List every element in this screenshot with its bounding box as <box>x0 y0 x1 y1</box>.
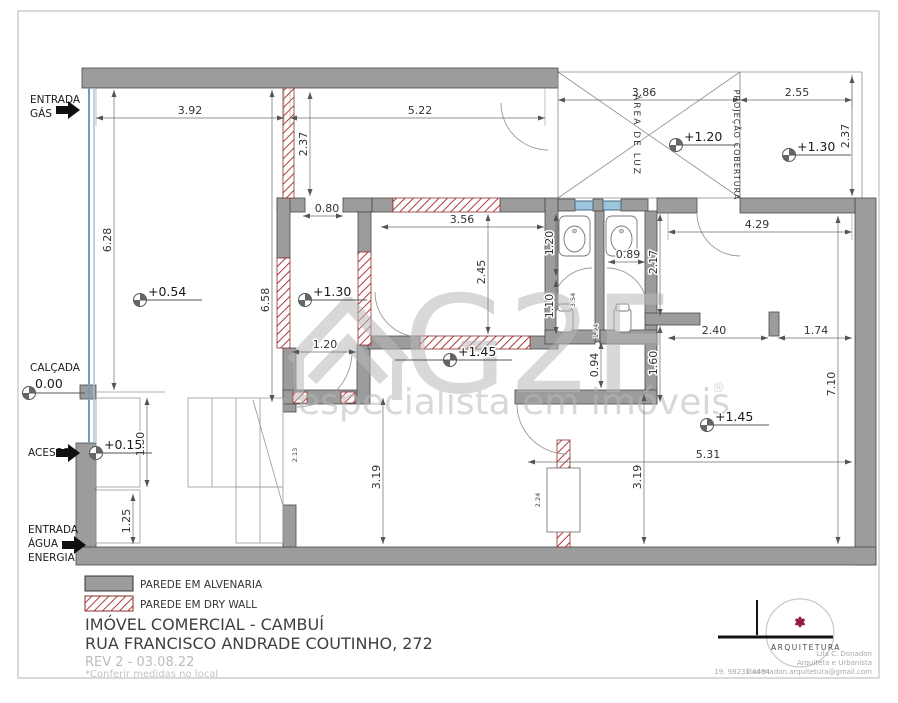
dim-label: 0.80 <box>315 202 340 215</box>
window-icon <box>575 201 593 210</box>
legend-label-alvenaria: PAREDE EM ALVENARIA <box>140 579 263 591</box>
dim-label: 6.58 <box>259 288 272 313</box>
dim-label: 1.60 <box>647 351 660 376</box>
calcada-label: CALÇADA <box>30 362 81 374</box>
dim-label: 2.17 <box>647 250 660 275</box>
svg-text:+1.45: +1.45 <box>715 409 753 424</box>
architect-email: liladonadon.arquitetura@gmail.com <box>746 668 872 676</box>
project-address: RUA FRANCISCO ANDRADE COUTINHO, 272 <box>85 634 433 653</box>
dim-label: 2.24 <box>534 493 542 507</box>
dim-label: 2.37 <box>297 132 310 157</box>
floor-plan-sheet: G2F especialista em imóveis ® 3.92 5.22 … <box>0 0 898 699</box>
dim-label: 2.45 <box>475 260 488 285</box>
legend-label-drywall: PAREDE EM DRY WALL <box>140 599 257 611</box>
architect-name: Lila C. Donadon <box>817 650 872 658</box>
dim-label: 2.55 <box>785 86 810 99</box>
dim-label: 3.19 <box>370 465 383 490</box>
entrada-gas-label: GÁS <box>30 107 52 120</box>
dim-label: 1.25 <box>120 509 133 534</box>
dim-label: 0.89 <box>616 248 641 261</box>
dim-label: 0.94 <box>588 353 601 378</box>
dim-label: 3.92 <box>178 104 203 117</box>
entrada-agua-label: ÁGUA <box>28 537 59 550</box>
svg-text:+1.30: +1.30 <box>797 139 835 154</box>
dim-label: 1.20 <box>313 338 338 351</box>
door-panel <box>547 468 580 532</box>
legend: PAREDE EM ALVENARIA PAREDE EM DRY WALL <box>85 576 263 611</box>
watermark-reg-icon: ® <box>712 381 725 396</box>
title-block: IMÓVEL COMERCIAL - CAMBUÍ RUA FRANCISCO … <box>85 615 433 680</box>
svg-text:+1.20: +1.20 <box>684 129 722 144</box>
svg-text:+1.45: +1.45 <box>458 344 496 359</box>
legend-swatch-alvenaria <box>85 576 133 591</box>
logo-flower-icon <box>794 617 806 628</box>
svg-text:+0.54: +0.54 <box>148 284 186 299</box>
dim-label: 4.29 <box>745 218 770 231</box>
svg-text:0.00: 0.00 <box>35 376 63 391</box>
entrada-gas-label: ENTRADA <box>30 94 81 106</box>
revision-label: REV 2 - 03.08.22 <box>85 655 194 670</box>
dim-label: 3.54 <box>569 293 577 307</box>
dim-label: 2.13 <box>291 448 299 462</box>
entrada-agua-label: ENERGIA <box>28 552 76 564</box>
watermark-tagline: especialista em imóveis <box>298 382 730 423</box>
dim-label: 5.22 <box>408 104 433 117</box>
dim-label: 6.28 <box>101 228 114 253</box>
svg-text:+1.30: +1.30 <box>313 284 351 299</box>
dim-label: 3.56 <box>450 213 475 226</box>
project-title: IMÓVEL COMERCIAL - CAMBUÍ <box>85 615 324 634</box>
architect-role: Arquiteta e Urbanista <box>797 659 872 667</box>
dim-label: 7.10 <box>825 372 838 397</box>
dim-label: 2.40 <box>702 324 727 337</box>
dim-label: 1.20 <box>543 231 556 256</box>
level-marker: 0.00 <box>23 376 86 400</box>
dim-label: 1.10 <box>543 294 556 319</box>
svg-text:+0.15: +0.15 <box>104 437 142 452</box>
level-marker: +0.54 <box>134 284 203 307</box>
dim-label: 5.31 <box>696 448 721 461</box>
legend-swatch-drywall <box>85 596 133 611</box>
entrada-agua-label: ENTRADA <box>28 524 79 536</box>
window-icon <box>603 201 621 210</box>
floor-plan-drawing: G2F especialista em imóveis ® 3.92 5.22 … <box>0 0 898 699</box>
note-label: *Conferir medidas no local <box>85 669 218 680</box>
area-de-luz-label: ÁREA DE LUZ <box>631 94 643 176</box>
dim-label: 3.19 <box>631 465 644 490</box>
dim-label: 2.37 <box>839 124 852 149</box>
architect-logo: ARQUITETURA Lila C. Donadon Arquiteta e … <box>714 599 872 676</box>
level-marker: +1.20 <box>670 129 739 152</box>
dim-label: 1.94 <box>592 324 600 338</box>
dim-label: 1.74 <box>804 324 829 337</box>
